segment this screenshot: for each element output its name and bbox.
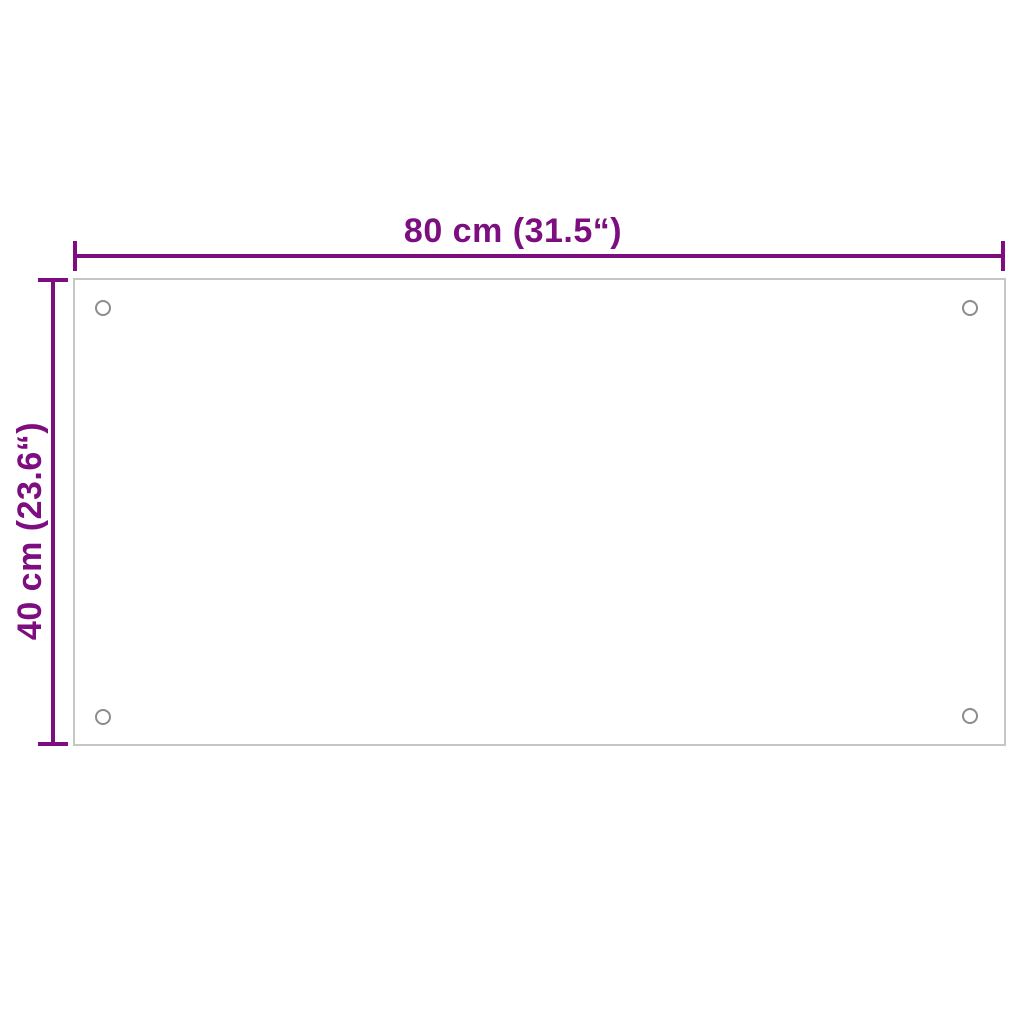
product-dimension-diagram: 80 cm (31.5“) 40 cm (23.6“) [0,0,1024,1024]
width-dimension-line [73,254,1005,258]
mounting-hole-top-left [95,300,111,316]
width-dimension-cap-left [73,241,77,271]
glass-panel [73,278,1006,746]
height-dimension-cap-bottom [38,742,68,746]
width-dimension-cap-right [1001,241,1005,271]
height-dimension-label: 40 cm (23.6“) [13,422,47,640]
height-dimension-line [51,278,55,744]
mounting-hole-bottom-right [962,708,978,724]
mounting-hole-top-right [962,300,978,316]
mounting-hole-bottom-left [95,709,111,725]
height-dimension-cap-top [38,278,68,282]
width-dimension-label: 80 cm (31.5“) [404,214,622,248]
